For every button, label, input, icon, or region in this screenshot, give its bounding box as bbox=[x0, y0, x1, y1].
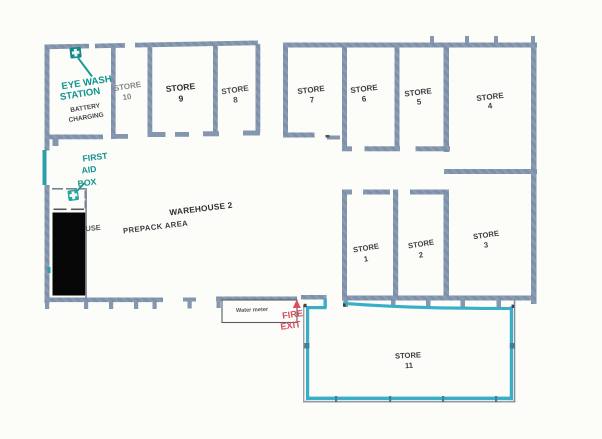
svg-text:FIRE: FIRE bbox=[282, 308, 304, 321]
svg-text:STORE: STORE bbox=[221, 84, 250, 97]
svg-text:10: 10 bbox=[122, 92, 133, 102]
svg-text:STORE: STORE bbox=[165, 81, 196, 94]
svg-text:2: 2 bbox=[418, 250, 424, 260]
svg-text:AID: AID bbox=[81, 164, 97, 176]
svg-text:4: 4 bbox=[487, 101, 493, 111]
svg-text:USE: USE bbox=[85, 223, 101, 234]
svg-text:9: 9 bbox=[178, 93, 184, 103]
svg-text:PREPACK AREA: PREPACK AREA bbox=[123, 219, 189, 236]
svg-text:8: 8 bbox=[233, 95, 239, 105]
svg-text:11: 11 bbox=[405, 361, 414, 370]
svg-text:FIRST: FIRST bbox=[82, 151, 109, 164]
svg-text:3: 3 bbox=[483, 240, 488, 250]
svg-text:EXIT: EXIT bbox=[280, 319, 302, 332]
svg-text:STORE: STORE bbox=[297, 84, 326, 96]
svg-text:5: 5 bbox=[416, 97, 422, 107]
svg-text:STORE: STORE bbox=[113, 80, 142, 93]
svg-text:Water meter: Water meter bbox=[236, 307, 269, 314]
svg-text:STORE: STORE bbox=[350, 83, 379, 95]
svg-text:7: 7 bbox=[309, 95, 315, 105]
svg-text:6: 6 bbox=[361, 94, 367, 104]
svg-text:WAREHOUSE 2: WAREHOUSE 2 bbox=[169, 200, 233, 218]
svg-text:STORE: STORE bbox=[407, 238, 434, 251]
svg-text:STORE: STORE bbox=[352, 242, 379, 255]
svg-text:1: 1 bbox=[363, 254, 369, 264]
svg-text:STORE: STORE bbox=[472, 229, 499, 242]
svg-text:STORE: STORE bbox=[395, 350, 421, 360]
